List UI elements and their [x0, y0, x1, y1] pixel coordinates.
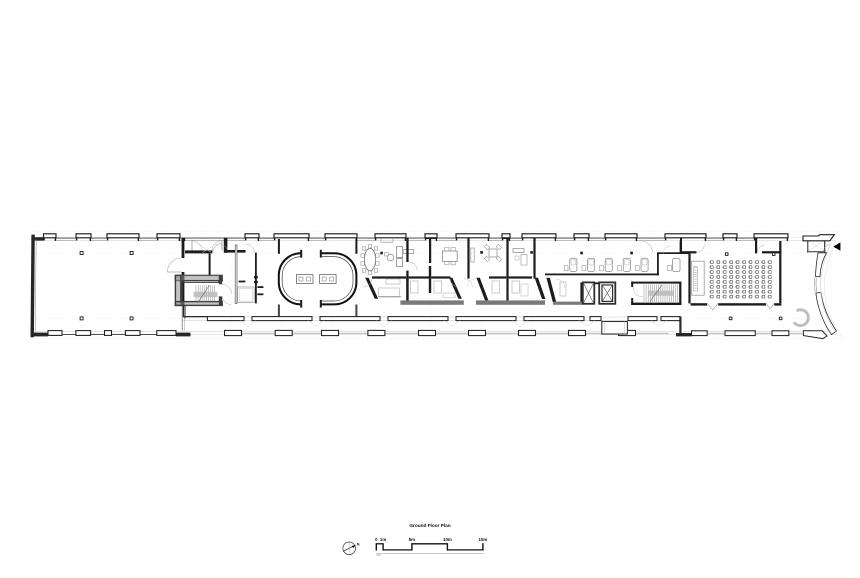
svg-text:15m: 15m	[479, 537, 488, 542]
svg-text:10m: 10m	[443, 537, 452, 542]
svg-text:Ground Floor Plan: Ground Floor Plan	[409, 523, 450, 529]
svg-text:1m: 1m	[376, 553, 381, 557]
svg-text:N: N	[357, 542, 360, 546]
svg-text:5m: 5m	[409, 537, 415, 542]
svg-text:1m: 1m	[380, 537, 386, 542]
